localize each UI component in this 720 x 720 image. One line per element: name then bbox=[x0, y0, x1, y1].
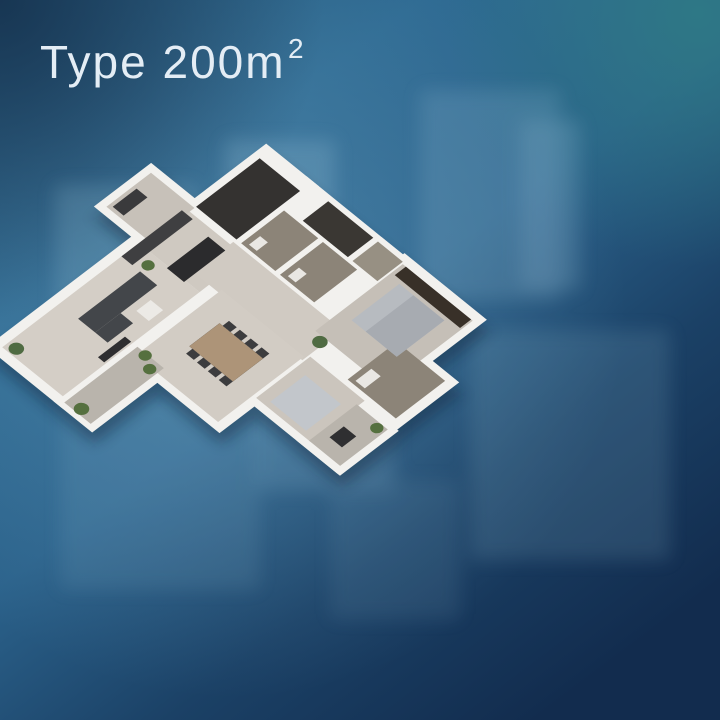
svg-text:2: 2 bbox=[288, 33, 304, 64]
svg-text:Type 200m: Type 200m bbox=[40, 36, 286, 88]
